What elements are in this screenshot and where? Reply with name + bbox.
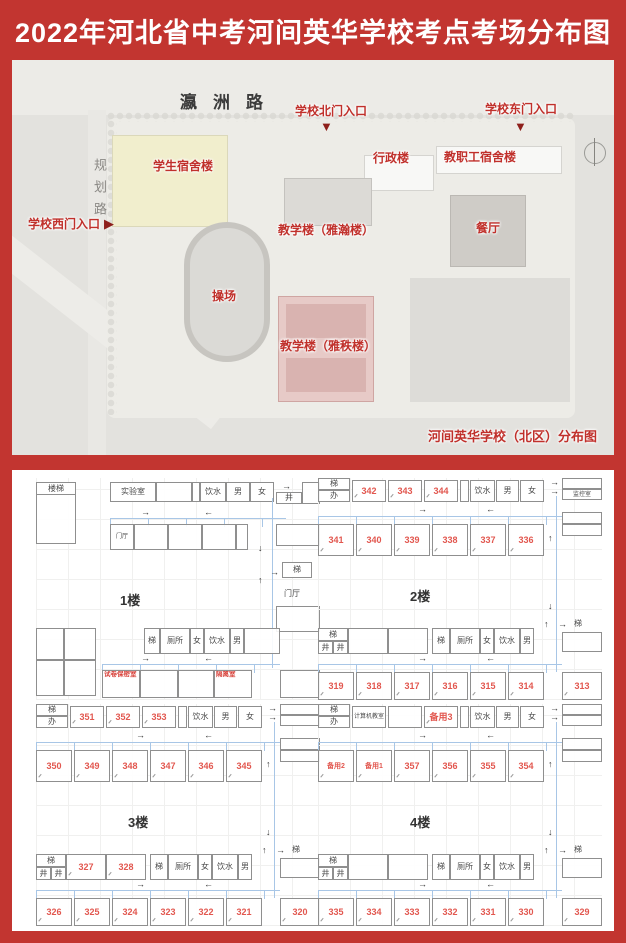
- floor-3-plan: 梯 办 351 352 353 饮水 男 女 → → → ← 350 349 3…: [36, 704, 320, 926]
- toilet-cell: 厕所: [450, 628, 480, 654]
- arrow-down-icon: ↓: [266, 828, 271, 837]
- room-cell: [192, 482, 200, 502]
- arrow-up-icon: ↑: [262, 846, 267, 855]
- room-cell: [276, 524, 320, 546]
- arrow-right-icon: →: [282, 482, 291, 491]
- stair-label: 梯: [574, 846, 582, 854]
- label-teaching2: 教学楼（雅秩楼）: [280, 340, 376, 352]
- water-room: 饮水: [494, 854, 520, 880]
- map-caption: 河间英华学校（北区）分布图: [428, 430, 597, 443]
- room-cell: [140, 670, 178, 698]
- floor-2-plan: 梯 办 342 343 344 饮水 男 女 → → 监控室 → ← 341 3…: [318, 478, 602, 700]
- arrow-right-icon: →: [550, 487, 559, 496]
- water-room: 饮水: [470, 480, 495, 502]
- arrow-down-icon: ↓: [258, 544, 263, 553]
- water-room: 饮水: [212, 854, 238, 880]
- label-dormitory: 学生宿舍楼: [153, 160, 213, 172]
- exam-room: 315: [470, 672, 506, 700]
- arrow-up-icon: ↑: [544, 620, 549, 629]
- arrow-right-icon: →: [141, 508, 150, 517]
- room-cell: [156, 482, 192, 502]
- stair-label: 梯: [292, 846, 300, 854]
- room-cell: [276, 606, 320, 632]
- room-cell: [280, 750, 320, 762]
- room-cell: [178, 670, 214, 698]
- room-cell: [64, 660, 96, 696]
- stair-cell: 梯: [36, 854, 66, 867]
- male-toilet: 男: [496, 706, 519, 728]
- stair-cell: 梯: [282, 562, 312, 578]
- route-line: [556, 496, 557, 672]
- arrow-right-icon: →: [270, 568, 279, 577]
- exam-room: 347: [150, 750, 186, 782]
- water-room: 饮水: [204, 628, 230, 654]
- exam-room: 324: [112, 898, 148, 926]
- stair-cell: 梯: [318, 854, 348, 867]
- arrow-up-icon: ↑: [544, 846, 549, 855]
- male-toilet: 男: [214, 706, 237, 728]
- room-cell: [388, 628, 428, 654]
- well-cell: 井: [333, 867, 348, 880]
- toilet-cell: 厕所: [160, 628, 190, 654]
- room-cell: [236, 524, 248, 550]
- arrow-left-icon: ←: [486, 731, 495, 740]
- exam-room: 338: [432, 524, 468, 556]
- exam-room: 339: [394, 524, 430, 556]
- floor-label: 1楼: [120, 590, 140, 609]
- exam-room: 333: [394, 898, 430, 926]
- office-cell: 办: [318, 490, 350, 502]
- exam-room: 313: [562, 672, 602, 700]
- exam-room: 326: [36, 898, 72, 926]
- exam-room: 353: [142, 706, 176, 728]
- exam-room: 342: [352, 480, 386, 502]
- female-toilet: 女: [198, 854, 212, 880]
- arrow-right-icon: →: [136, 731, 145, 740]
- exam-room: 350: [36, 750, 72, 782]
- building-teaching2-wing-south: [286, 358, 366, 392]
- label-dining: 餐厅: [476, 222, 500, 234]
- stair-cell: 梯: [150, 854, 168, 880]
- label-entrance-north: 学校北门入口: [295, 105, 367, 117]
- office-cell: 办: [318, 716, 350, 728]
- stair-cell: 梯: [318, 628, 348, 641]
- arrow-down-icon: ↓: [548, 828, 553, 837]
- female-toilet: 女: [480, 854, 494, 880]
- label-teaching1: 教学楼（雅瀚楼）: [278, 224, 374, 236]
- arrow-right-icon: →: [268, 713, 277, 722]
- arrow-right-icon: →: [136, 880, 145, 889]
- exam-room: 322: [188, 898, 224, 926]
- road-name-guihua: 规划路: [90, 158, 109, 224]
- label-entrance-east: 学校东门入口: [485, 103, 557, 115]
- floor-1-plan: 楼梯 实验室 饮水 男 女 → 井 → ← 门厅 1楼 ↓ ↑ → 梯 门厅 梯…: [36, 478, 320, 700]
- room-cell: [202, 524, 236, 550]
- room-cell: [280, 738, 320, 750]
- toilet-cell: 厕所: [168, 854, 198, 880]
- stair-cell: 梯: [318, 704, 350, 716]
- exam-site-poster: { "title": "2022年河北省中考河间英华学校考点考场分布图", "i…: [0, 0, 626, 943]
- room-cell: [562, 524, 602, 536]
- office-cell: 办: [36, 716, 68, 728]
- room-cell: [168, 524, 202, 550]
- well-cell: 井: [333, 641, 348, 654]
- spare-room: 备用1: [356, 750, 392, 782]
- room-cell: [562, 632, 602, 652]
- arrow-up-icon: ↑: [258, 576, 263, 585]
- male-toilet: 男: [226, 482, 250, 502]
- arrow-down-icon: ↓: [548, 602, 553, 611]
- exam-room: 343: [388, 480, 422, 502]
- foyer-label: 门厅: [284, 590, 300, 598]
- arrow-up-icon: ↑: [266, 760, 271, 769]
- female-toilet: 女: [250, 482, 274, 502]
- male-toilet: 男: [238, 854, 252, 880]
- lab-room: 实验室: [110, 482, 156, 502]
- female-toilet: 女: [520, 480, 544, 502]
- room-cell: [562, 478, 602, 489]
- stair-cell: 梯: [36, 704, 68, 716]
- computer-room: 计算机教室: [352, 706, 386, 728]
- exam-room: 351: [70, 706, 104, 728]
- room-cell: [460, 480, 469, 502]
- arrow-left-icon: ←: [204, 654, 213, 663]
- exam-room: 330: [508, 898, 544, 926]
- well-cell: 井: [276, 492, 302, 504]
- well-cell: 井: [51, 867, 66, 880]
- water-room: 饮水: [470, 706, 495, 728]
- triangle-right-icon: ▶: [104, 217, 114, 230]
- arrow-up-icon: ↑: [548, 760, 553, 769]
- page-title: 2022年河北省中考河间英华学校考点考场分布图: [15, 11, 611, 50]
- female-toilet: 女: [190, 628, 204, 654]
- spare-room: 备用3: [424, 706, 458, 728]
- room-cell: [36, 628, 64, 660]
- monitor-room: 监控室: [562, 489, 602, 500]
- exam-room: 336: [508, 524, 544, 556]
- room-cell: [460, 706, 469, 728]
- exam-room: 355: [470, 750, 506, 782]
- female-toilet: 女: [520, 706, 544, 728]
- exam-room: 357: [394, 750, 430, 782]
- water-room: 饮水: [494, 628, 520, 654]
- male-toilet: 男: [520, 628, 534, 654]
- exam-room: 320: [280, 898, 320, 926]
- stairwell-label: 楼梯: [36, 482, 76, 495]
- female-toilet: 女: [480, 628, 494, 654]
- route-line: [274, 722, 275, 898]
- well-cell: 井: [318, 867, 333, 880]
- exam-room: 341: [318, 524, 354, 556]
- room-cell: [562, 704, 602, 715]
- toilet-cell: 厕所: [450, 854, 480, 880]
- exam-room: 334: [356, 898, 392, 926]
- room-cell: [64, 628, 96, 660]
- exam-room: 319: [318, 672, 354, 700]
- label-admin: 行政楼: [373, 152, 409, 164]
- exam-room: 321: [226, 898, 262, 926]
- title-bar: 2022年河北省中考河间英华学校考点考场分布图: [0, 0, 626, 60]
- label-playground: 操场: [212, 290, 236, 302]
- exam-room: 316: [432, 672, 468, 700]
- floor-plans: 楼梯 实验室 饮水 男 女 → 井 → ← 门厅 1楼 ↓ ↑ → 梯 门厅 梯…: [12, 470, 614, 931]
- route-line: [556, 722, 557, 898]
- exam-room: 337: [470, 524, 506, 556]
- stair-cell: 梯: [432, 854, 450, 880]
- spare-room: 备用2: [318, 750, 354, 782]
- exam-room: 345: [226, 750, 262, 782]
- campus-map: 瀛洲路 规划路 学生宿舍楼 行政楼 教职工宿舍楼 教学楼（雅瀚楼） 餐厅 操场 …: [12, 60, 614, 455]
- residential-blocks: [410, 278, 570, 402]
- road-name-yingzhou: 瀛洲路: [180, 88, 279, 113]
- exam-room: 340: [356, 524, 392, 556]
- water-room: 饮水: [188, 706, 213, 728]
- room-cell: [388, 854, 428, 880]
- exam-room: 348: [112, 750, 148, 782]
- exam-room: 332: [432, 898, 468, 926]
- stair-label: 梯: [574, 620, 582, 628]
- exam-room: 352: [106, 706, 140, 728]
- room-cell: [388, 706, 422, 728]
- room-cell: [562, 738, 602, 750]
- isolation-room: 隔离室: [214, 670, 252, 698]
- label-staff-dorm: 教职工宿舍楼: [444, 151, 516, 163]
- exam-room: 329: [562, 898, 602, 926]
- room-cell: [280, 670, 320, 698]
- stair-cell: 梯: [144, 628, 160, 654]
- building-teaching2-wing-north: [286, 304, 366, 338]
- exam-room: 346: [188, 750, 224, 782]
- label-entrance-west: 学校西门入口: [28, 218, 100, 230]
- exam-room: 356: [432, 750, 468, 782]
- triangle-down-icon: ▼: [514, 120, 527, 133]
- arrow-left-icon: ←: [486, 880, 495, 889]
- room-cell: [562, 750, 602, 762]
- exam-room: 335: [318, 898, 354, 926]
- arrow-left-icon: ←: [204, 508, 213, 517]
- arrow-up-icon: ↑: [548, 534, 553, 543]
- male-toilet: 男: [520, 854, 534, 880]
- arrow-right-icon: →: [276, 846, 285, 855]
- arrow-right-icon: →: [418, 731, 427, 740]
- room-cell: [348, 628, 388, 654]
- room-cell: [562, 858, 602, 878]
- arrow-right-icon: →: [418, 880, 427, 889]
- exam-room: 317: [394, 672, 430, 700]
- stair-cell: 梯: [432, 628, 450, 654]
- room-cell: [562, 512, 602, 524]
- room-cell: [178, 706, 187, 728]
- floor-label: 4楼: [410, 812, 430, 831]
- exam-room: 331: [470, 898, 506, 926]
- arrow-left-icon: ←: [486, 505, 495, 514]
- arrow-left-icon: ←: [486, 654, 495, 663]
- exam-room: 354: [508, 750, 544, 782]
- stair-cell: 梯: [318, 478, 350, 490]
- floor-label: 2楼: [410, 586, 430, 605]
- room-cell: [280, 858, 320, 878]
- exam-room: 344: [424, 480, 458, 502]
- exam-room: 323: [150, 898, 186, 926]
- exam-room: 328: [106, 854, 146, 880]
- room-cell: [280, 704, 320, 715]
- exam-room: 314: [508, 672, 544, 700]
- floor-label: 3楼: [128, 812, 148, 831]
- triangle-down-icon: ▼: [320, 120, 333, 133]
- exam-room: 325: [74, 898, 110, 926]
- compass-icon: [584, 142, 606, 164]
- water-room: 饮水: [200, 482, 226, 502]
- room-cell: [280, 715, 320, 726]
- exam-room: 349: [74, 750, 110, 782]
- arrow-right-icon: →: [141, 654, 150, 663]
- exam-room: 327: [66, 854, 106, 880]
- floor-4-plan: 梯 办 计算机教室 备用3 饮水 男 女 → → → ← 备用2 备用1 357…: [318, 704, 602, 926]
- arrow-right-icon: →: [558, 846, 567, 855]
- room-cell: [36, 660, 64, 696]
- male-toilet: 男: [496, 480, 519, 502]
- arrow-left-icon: ←: [204, 731, 213, 740]
- arrow-left-icon: ←: [204, 880, 213, 889]
- paper-secret-room: 试卷保密室: [102, 670, 140, 698]
- room-cell: [244, 628, 280, 654]
- arrow-right-icon: →: [550, 713, 559, 722]
- building-dormitory: [112, 135, 228, 227]
- arrow-right-icon: →: [558, 620, 567, 629]
- well-cell: 井: [318, 641, 333, 654]
- well-cell: 井: [36, 867, 51, 880]
- room-cell: [562, 715, 602, 726]
- male-toilet: 男: [230, 628, 244, 654]
- building-teaching1: [284, 178, 372, 226]
- exam-room: 318: [356, 672, 392, 700]
- room-cell: [134, 524, 168, 550]
- compass-needle-icon: [594, 138, 595, 166]
- arrow-right-icon: →: [418, 505, 427, 514]
- room-cell: [348, 854, 388, 880]
- arrow-right-icon: →: [418, 654, 427, 663]
- female-toilet: 女: [238, 706, 262, 728]
- foyer-cell: 门厅: [110, 524, 134, 550]
